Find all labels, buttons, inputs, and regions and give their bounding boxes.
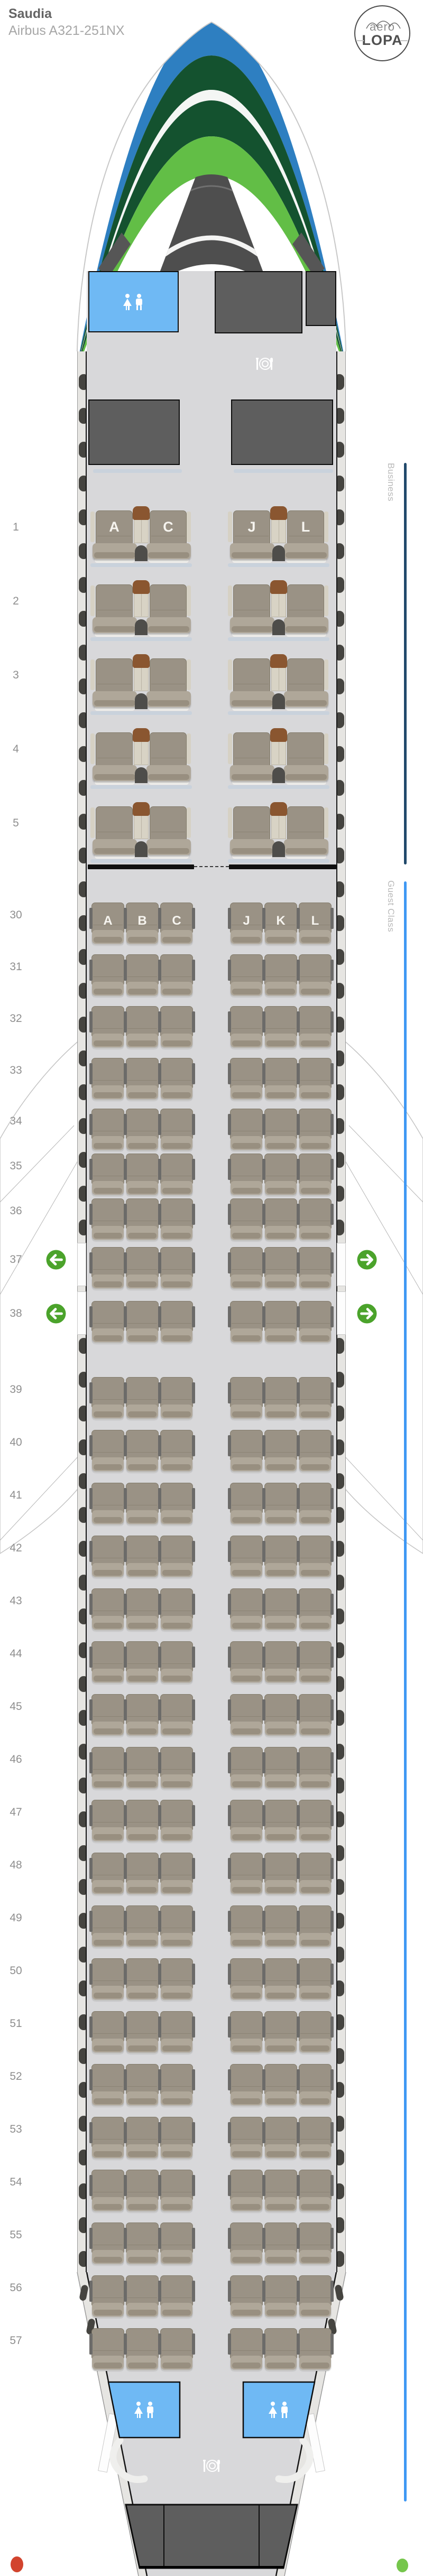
cushion-band bbox=[94, 1335, 122, 1341]
cushion-band bbox=[286, 774, 327, 780]
armrest bbox=[262, 1011, 265, 1033]
armrest bbox=[124, 2122, 127, 2143]
seat-37B bbox=[126, 1247, 159, 1278]
armrest bbox=[297, 1252, 300, 1273]
seat-seam bbox=[289, 758, 323, 758]
cabin-window-right bbox=[337, 1439, 344, 1455]
seat-cushion bbox=[284, 765, 328, 781]
seat-cushion bbox=[161, 1880, 192, 1894]
cabin-window-left bbox=[79, 611, 86, 627]
cabin-window-right bbox=[337, 2048, 344, 2064]
console-headrest bbox=[270, 506, 287, 520]
seat-seam bbox=[266, 1176, 296, 1176]
bulkhead-curtain bbox=[194, 866, 229, 867]
seat-cushion bbox=[126, 1880, 158, 1894]
cabin-window-left bbox=[79, 1473, 86, 1489]
seat-cushion bbox=[126, 2039, 158, 2052]
cushion-band bbox=[232, 2257, 261, 2263]
seat-cushion bbox=[126, 1136, 158, 1150]
armrest bbox=[158, 1858, 161, 1879]
armrest bbox=[330, 1964, 334, 1985]
cushion-band bbox=[94, 1781, 122, 1787]
seat-40C bbox=[160, 1430, 193, 1461]
armrest bbox=[192, 1647, 195, 1668]
seat-seam bbox=[232, 2139, 261, 2140]
seat-31J bbox=[230, 954, 263, 985]
aircraft-nose bbox=[0, 0, 423, 351]
armrest bbox=[330, 908, 334, 929]
seat-seam bbox=[232, 2033, 261, 2034]
figure-part bbox=[125, 294, 130, 298]
seat-cushion bbox=[92, 2303, 124, 2317]
cushion-band bbox=[232, 1188, 261, 1194]
figure-part bbox=[136, 305, 138, 310]
seat-33J bbox=[230, 1058, 263, 1089]
seat-seam bbox=[232, 1928, 261, 1928]
seat-seam bbox=[300, 1822, 330, 1822]
seat-cushion bbox=[265, 2356, 297, 2369]
seat-cushion bbox=[92, 1827, 124, 1841]
armrest bbox=[262, 1594, 265, 1615]
cabin-window-right bbox=[337, 780, 344, 796]
seat-seam bbox=[162, 1131, 191, 1131]
seat-4C bbox=[150, 732, 187, 766]
seat-seam bbox=[232, 2350, 261, 2351]
cushion-band bbox=[94, 1517, 122, 1523]
figure-part bbox=[134, 2406, 143, 2414]
row-number-49: 49 bbox=[4, 1912, 27, 1924]
seat-cushion bbox=[231, 1669, 262, 1682]
armrest bbox=[330, 1204, 334, 1225]
armrest bbox=[192, 1911, 195, 1932]
icon-part bbox=[256, 358, 259, 359]
console-split-line bbox=[141, 594, 142, 616]
armrest bbox=[330, 1011, 334, 1033]
armrest bbox=[330, 1306, 334, 1327]
armrest bbox=[297, 2175, 300, 2196]
armrest bbox=[228, 2333, 231, 2355]
cabin-window-left bbox=[79, 1372, 86, 1388]
cabin-window-right bbox=[337, 1406, 344, 1421]
armrest bbox=[297, 1382, 300, 1403]
seat-cushion bbox=[299, 2250, 331, 2264]
armrest bbox=[297, 1488, 300, 1509]
cabin-window-left bbox=[79, 915, 86, 931]
icon-part bbox=[262, 360, 269, 367]
seat-46K bbox=[264, 1747, 297, 1778]
business-section-line bbox=[404, 463, 407, 864]
cushion-band bbox=[301, 2310, 329, 2315]
seat-55C bbox=[160, 2222, 193, 2253]
seat-cushion bbox=[265, 2303, 297, 2317]
armrest bbox=[124, 960, 127, 981]
seat-seam bbox=[93, 2245, 123, 2245]
seat-37L bbox=[299, 1247, 332, 1278]
seat-56L bbox=[299, 2275, 332, 2306]
armrest bbox=[124, 1159, 127, 1180]
seat-cushion bbox=[299, 1827, 331, 1841]
cushion-band bbox=[232, 2045, 261, 2051]
armrest bbox=[192, 2069, 195, 2090]
cabin-window-right bbox=[337, 1541, 344, 1557]
seat-cushion bbox=[265, 1933, 297, 1947]
seat-4A bbox=[96, 732, 133, 766]
seat-seam bbox=[232, 1980, 261, 1981]
seat-40J bbox=[230, 1430, 263, 1461]
cabin-window-left bbox=[79, 2014, 86, 2030]
seat-track-sill bbox=[228, 785, 329, 789]
console-table-arch bbox=[135, 619, 148, 635]
figure-part bbox=[271, 2402, 275, 2406]
exit-arrow-right-icon bbox=[357, 1304, 377, 1324]
cushion-band bbox=[128, 1676, 157, 1681]
seat-32A bbox=[91, 1006, 124, 1037]
armrest bbox=[192, 1488, 195, 1509]
cushion-band bbox=[266, 2204, 295, 2210]
seat-cushion bbox=[231, 2144, 262, 2158]
cushion-band bbox=[162, 2151, 191, 2157]
seat-seam bbox=[162, 1399, 191, 1400]
cushion-band bbox=[301, 1188, 329, 1194]
seat-seam bbox=[162, 2086, 191, 2087]
seat-5C bbox=[150, 806, 187, 840]
seat-seam bbox=[266, 1663, 296, 1664]
seat-cushion bbox=[231, 1457, 262, 1471]
seat-cushion bbox=[92, 1034, 124, 1047]
seat-seam bbox=[300, 2192, 330, 2192]
seat-seam bbox=[162, 1875, 191, 1875]
seat-48C bbox=[160, 1853, 193, 1883]
seat-34C bbox=[160, 1109, 193, 1139]
seat-seam bbox=[162, 1611, 191, 1611]
armrest bbox=[330, 1063, 334, 1084]
seat-34A bbox=[91, 1109, 124, 1139]
cushion-band bbox=[232, 2151, 261, 2157]
seat-31B bbox=[126, 954, 159, 985]
seat-cushion bbox=[161, 2356, 192, 2369]
seat-cushion bbox=[126, 1669, 158, 1682]
seat-cushion bbox=[126, 2303, 158, 2317]
cabin-window-right bbox=[337, 949, 344, 965]
seat-50K bbox=[264, 1958, 297, 1989]
cushion-band bbox=[162, 1728, 191, 1734]
armrest bbox=[192, 1805, 195, 1826]
seat-seam bbox=[151, 684, 185, 684]
armrest bbox=[262, 1204, 265, 1225]
cabin-window-right bbox=[337, 915, 344, 931]
seat-seam bbox=[127, 2298, 157, 2298]
armrest bbox=[262, 1858, 265, 1879]
row-number-1: 1 bbox=[4, 521, 27, 534]
exit-arrow-right-icon bbox=[357, 1250, 377, 1270]
cushion-band bbox=[94, 1143, 122, 1149]
cabin-window-left bbox=[79, 1152, 86, 1168]
row-number-45: 45 bbox=[4, 1700, 27, 1713]
seat-35C bbox=[160, 1154, 193, 1184]
cushion-band bbox=[128, 1143, 157, 1149]
cushion-band bbox=[94, 937, 122, 943]
armrest bbox=[192, 1541, 195, 1562]
figure-part bbox=[148, 2413, 149, 2418]
cushion-band bbox=[301, 1834, 329, 1840]
cabin-window-left bbox=[79, 2217, 86, 2233]
seat-34K bbox=[264, 1109, 297, 1139]
cabin-window-right bbox=[337, 611, 344, 627]
seat-shell-panel bbox=[228, 659, 232, 690]
armrest bbox=[297, 908, 300, 929]
armrest bbox=[89, 1114, 93, 1135]
armrest bbox=[124, 908, 127, 929]
seat-seam bbox=[127, 1028, 157, 1029]
console-split-line bbox=[279, 594, 279, 616]
cushion-band bbox=[148, 848, 189, 854]
cushion-band bbox=[232, 626, 273, 632]
seat-cushion bbox=[231, 2250, 262, 2264]
seat-seam bbox=[93, 1875, 123, 1875]
row-number-42: 42 bbox=[4, 1542, 27, 1555]
armrest bbox=[192, 1382, 195, 1403]
seat-shell-panel bbox=[187, 585, 191, 616]
seat-44K bbox=[264, 1641, 297, 1672]
cushion-band bbox=[266, 2045, 295, 2051]
row-number-33: 33 bbox=[4, 1064, 27, 1077]
cushion-band bbox=[94, 2151, 122, 2157]
seat-31K bbox=[264, 954, 297, 985]
bulkhead-right bbox=[229, 864, 336, 869]
row-number-56: 56 bbox=[4, 2282, 27, 2294]
seat-54K bbox=[264, 2170, 297, 2200]
seat-cushion bbox=[161, 1405, 192, 1418]
seat-cushion bbox=[230, 543, 274, 559]
armrest bbox=[158, 2069, 161, 2090]
seat-45C bbox=[160, 1694, 193, 1725]
cabin-window-right bbox=[337, 374, 344, 390]
seat-seam bbox=[300, 1875, 330, 1875]
armrest bbox=[89, 1964, 93, 1985]
row-number-40: 40 bbox=[4, 1436, 27, 1449]
seat-53B bbox=[126, 2117, 159, 2147]
armrest bbox=[262, 1063, 265, 1084]
seat-51B bbox=[126, 2011, 159, 2042]
seat-shell-panel bbox=[90, 659, 95, 690]
cabin-window-right bbox=[337, 442, 344, 458]
seat-32L bbox=[299, 1006, 332, 1037]
cabin-window-left bbox=[79, 746, 86, 762]
seat-seam bbox=[93, 1769, 123, 1770]
seat-51C bbox=[160, 2011, 193, 2042]
armrest bbox=[124, 1858, 127, 1879]
cushion-band bbox=[94, 2204, 122, 2210]
seat-seam bbox=[289, 832, 323, 832]
seat-52A bbox=[91, 2064, 124, 2095]
cushion-band bbox=[301, 1623, 329, 1629]
cabin-window-left bbox=[79, 2150, 86, 2165]
row-number-57: 57 bbox=[4, 2335, 27, 2347]
seat-seam bbox=[235, 610, 269, 610]
seat-seam bbox=[300, 1269, 330, 1270]
row-number-53: 53 bbox=[4, 2123, 27, 2136]
seat-shell-panel bbox=[228, 512, 232, 542]
armrest bbox=[297, 1594, 300, 1615]
figure-part bbox=[286, 2413, 287, 2418]
seat-seam bbox=[93, 1221, 123, 1221]
cushion-band bbox=[128, 1335, 157, 1341]
seat-56K bbox=[264, 2275, 297, 2306]
figure-part bbox=[139, 2414, 141, 2418]
cabin-window-left bbox=[79, 1575, 86, 1591]
cabin-window-left bbox=[79, 678, 86, 694]
armrest bbox=[297, 1699, 300, 1721]
seat-seam bbox=[127, 1221, 157, 1221]
seat-40K bbox=[264, 1430, 297, 1461]
seat-cushion bbox=[126, 1085, 158, 1099]
armrest bbox=[89, 1252, 93, 1273]
console-split-line bbox=[279, 668, 279, 690]
cabin-window-right bbox=[337, 2251, 344, 2267]
armrest bbox=[192, 960, 195, 981]
seat-shell-panel bbox=[324, 733, 328, 764]
cushion-band bbox=[286, 626, 327, 632]
armrest bbox=[192, 1752, 195, 1773]
cushion-band bbox=[232, 1411, 261, 1417]
cushion-band bbox=[232, 1887, 261, 1893]
seat-cushion bbox=[92, 1181, 124, 1195]
seat-38B bbox=[126, 1301, 159, 1332]
exit-arrow-left-icon bbox=[46, 1304, 66, 1324]
cushion-band bbox=[128, 937, 157, 943]
figure-part bbox=[136, 299, 142, 305]
cushion-band bbox=[286, 552, 327, 558]
armrest bbox=[330, 1752, 334, 1773]
seat-3L bbox=[287, 658, 324, 692]
cushion-band bbox=[128, 1623, 157, 1629]
armrest bbox=[124, 2281, 127, 2302]
console-headrest bbox=[270, 728, 287, 742]
seat-32C bbox=[160, 1006, 193, 1037]
console-headrest bbox=[133, 580, 150, 594]
cabin-window-left bbox=[79, 2116, 86, 2132]
row-number-50: 50 bbox=[4, 1965, 27, 1977]
seat-cushion bbox=[161, 1328, 192, 1342]
cushion-band bbox=[232, 1993, 261, 1998]
armrest bbox=[158, 1964, 161, 1985]
seat-seam bbox=[162, 1505, 191, 1505]
cushion-band bbox=[162, 2204, 191, 2210]
console-headrest bbox=[270, 654, 287, 668]
cushion-band bbox=[148, 700, 189, 706]
seat-cushion bbox=[126, 1328, 158, 1342]
seat-cushion bbox=[299, 2091, 331, 2105]
seat-cushion bbox=[265, 1226, 297, 1240]
seat-cushion bbox=[265, 1136, 297, 1150]
cushion-band bbox=[266, 2363, 295, 2368]
cushion-band bbox=[232, 1517, 261, 1523]
seat-cushion bbox=[92, 2039, 124, 2052]
armrest bbox=[124, 1488, 127, 1509]
armrest bbox=[89, 1435, 93, 1456]
seat-shell-panel bbox=[324, 807, 328, 838]
seat-38L bbox=[299, 1301, 332, 1332]
seat-47C bbox=[160, 1800, 193, 1830]
seat-45K bbox=[264, 1694, 297, 1725]
cushion-band bbox=[266, 1335, 295, 1341]
seat-43K bbox=[264, 1588, 297, 1619]
cabin-window-right bbox=[337, 1220, 344, 1235]
cushion-band bbox=[232, 1940, 261, 1946]
seat-33K bbox=[264, 1058, 297, 1089]
seat-56B bbox=[126, 2275, 159, 2306]
armrest bbox=[297, 1647, 300, 1668]
seat-cushion bbox=[299, 1328, 331, 1342]
seat-shell-panel bbox=[324, 659, 328, 690]
seat-cushion bbox=[126, 982, 158, 996]
cabin-window-right bbox=[337, 476, 344, 491]
seat-cushion bbox=[299, 2144, 331, 2158]
cushion-band bbox=[148, 626, 189, 632]
seat-cushion bbox=[265, 1034, 297, 1047]
seat-47L bbox=[299, 1800, 332, 1830]
cabin-window-left bbox=[79, 1406, 86, 1421]
armrest bbox=[124, 1911, 127, 1932]
seat-seam bbox=[266, 1080, 296, 1081]
armrest bbox=[124, 1382, 127, 1403]
seat-cushion bbox=[265, 1181, 297, 1195]
cushion-band bbox=[94, 1570, 122, 1576]
cushion-band bbox=[232, 1834, 261, 1840]
armrest bbox=[89, 1858, 93, 1879]
seat-2A bbox=[96, 584, 133, 618]
seat-49A bbox=[91, 1905, 124, 1936]
seat-seam bbox=[151, 536, 185, 536]
seat-cushion bbox=[265, 1405, 297, 1418]
cabin-window-left bbox=[79, 1811, 86, 1827]
cushion-band bbox=[128, 989, 157, 994]
seat-42A bbox=[91, 1536, 124, 1566]
seat-cushion bbox=[92, 1405, 124, 1418]
seat-cushion bbox=[299, 1034, 331, 1047]
armrest bbox=[297, 1964, 300, 1985]
seat-cushion bbox=[161, 2250, 192, 2264]
armrest bbox=[89, 1541, 93, 1562]
seat-seam bbox=[300, 1928, 330, 1928]
figure-part bbox=[269, 2406, 277, 2414]
armrest bbox=[297, 1159, 300, 1180]
seat-3A bbox=[96, 658, 133, 692]
cushion-band bbox=[128, 1092, 157, 1098]
cushion-band bbox=[232, 1781, 261, 1787]
armrest bbox=[228, 1382, 231, 1403]
overwing-exit-1L bbox=[77, 1243, 86, 1286]
figure-part bbox=[148, 2402, 152, 2406]
figure-part bbox=[126, 306, 127, 310]
seat-41J bbox=[230, 1483, 263, 1513]
seat-5L bbox=[287, 806, 324, 840]
cabin-window-left bbox=[79, 881, 86, 897]
seat-cushion bbox=[299, 1275, 331, 1288]
armrest bbox=[228, 2122, 231, 2143]
cushion-band bbox=[232, 2310, 261, 2315]
cushion-band bbox=[232, 1281, 261, 1287]
armrest bbox=[262, 908, 265, 929]
seat-seam bbox=[266, 2192, 296, 2192]
right-wing bbox=[337, 1020, 423, 1575]
seat-55L bbox=[299, 2222, 332, 2253]
seat-seam bbox=[232, 1323, 261, 1324]
seat-seam bbox=[232, 1452, 261, 1453]
armrest bbox=[158, 1063, 161, 1084]
seat-43B bbox=[126, 1588, 159, 1619]
seat-cushion bbox=[161, 1669, 192, 1682]
